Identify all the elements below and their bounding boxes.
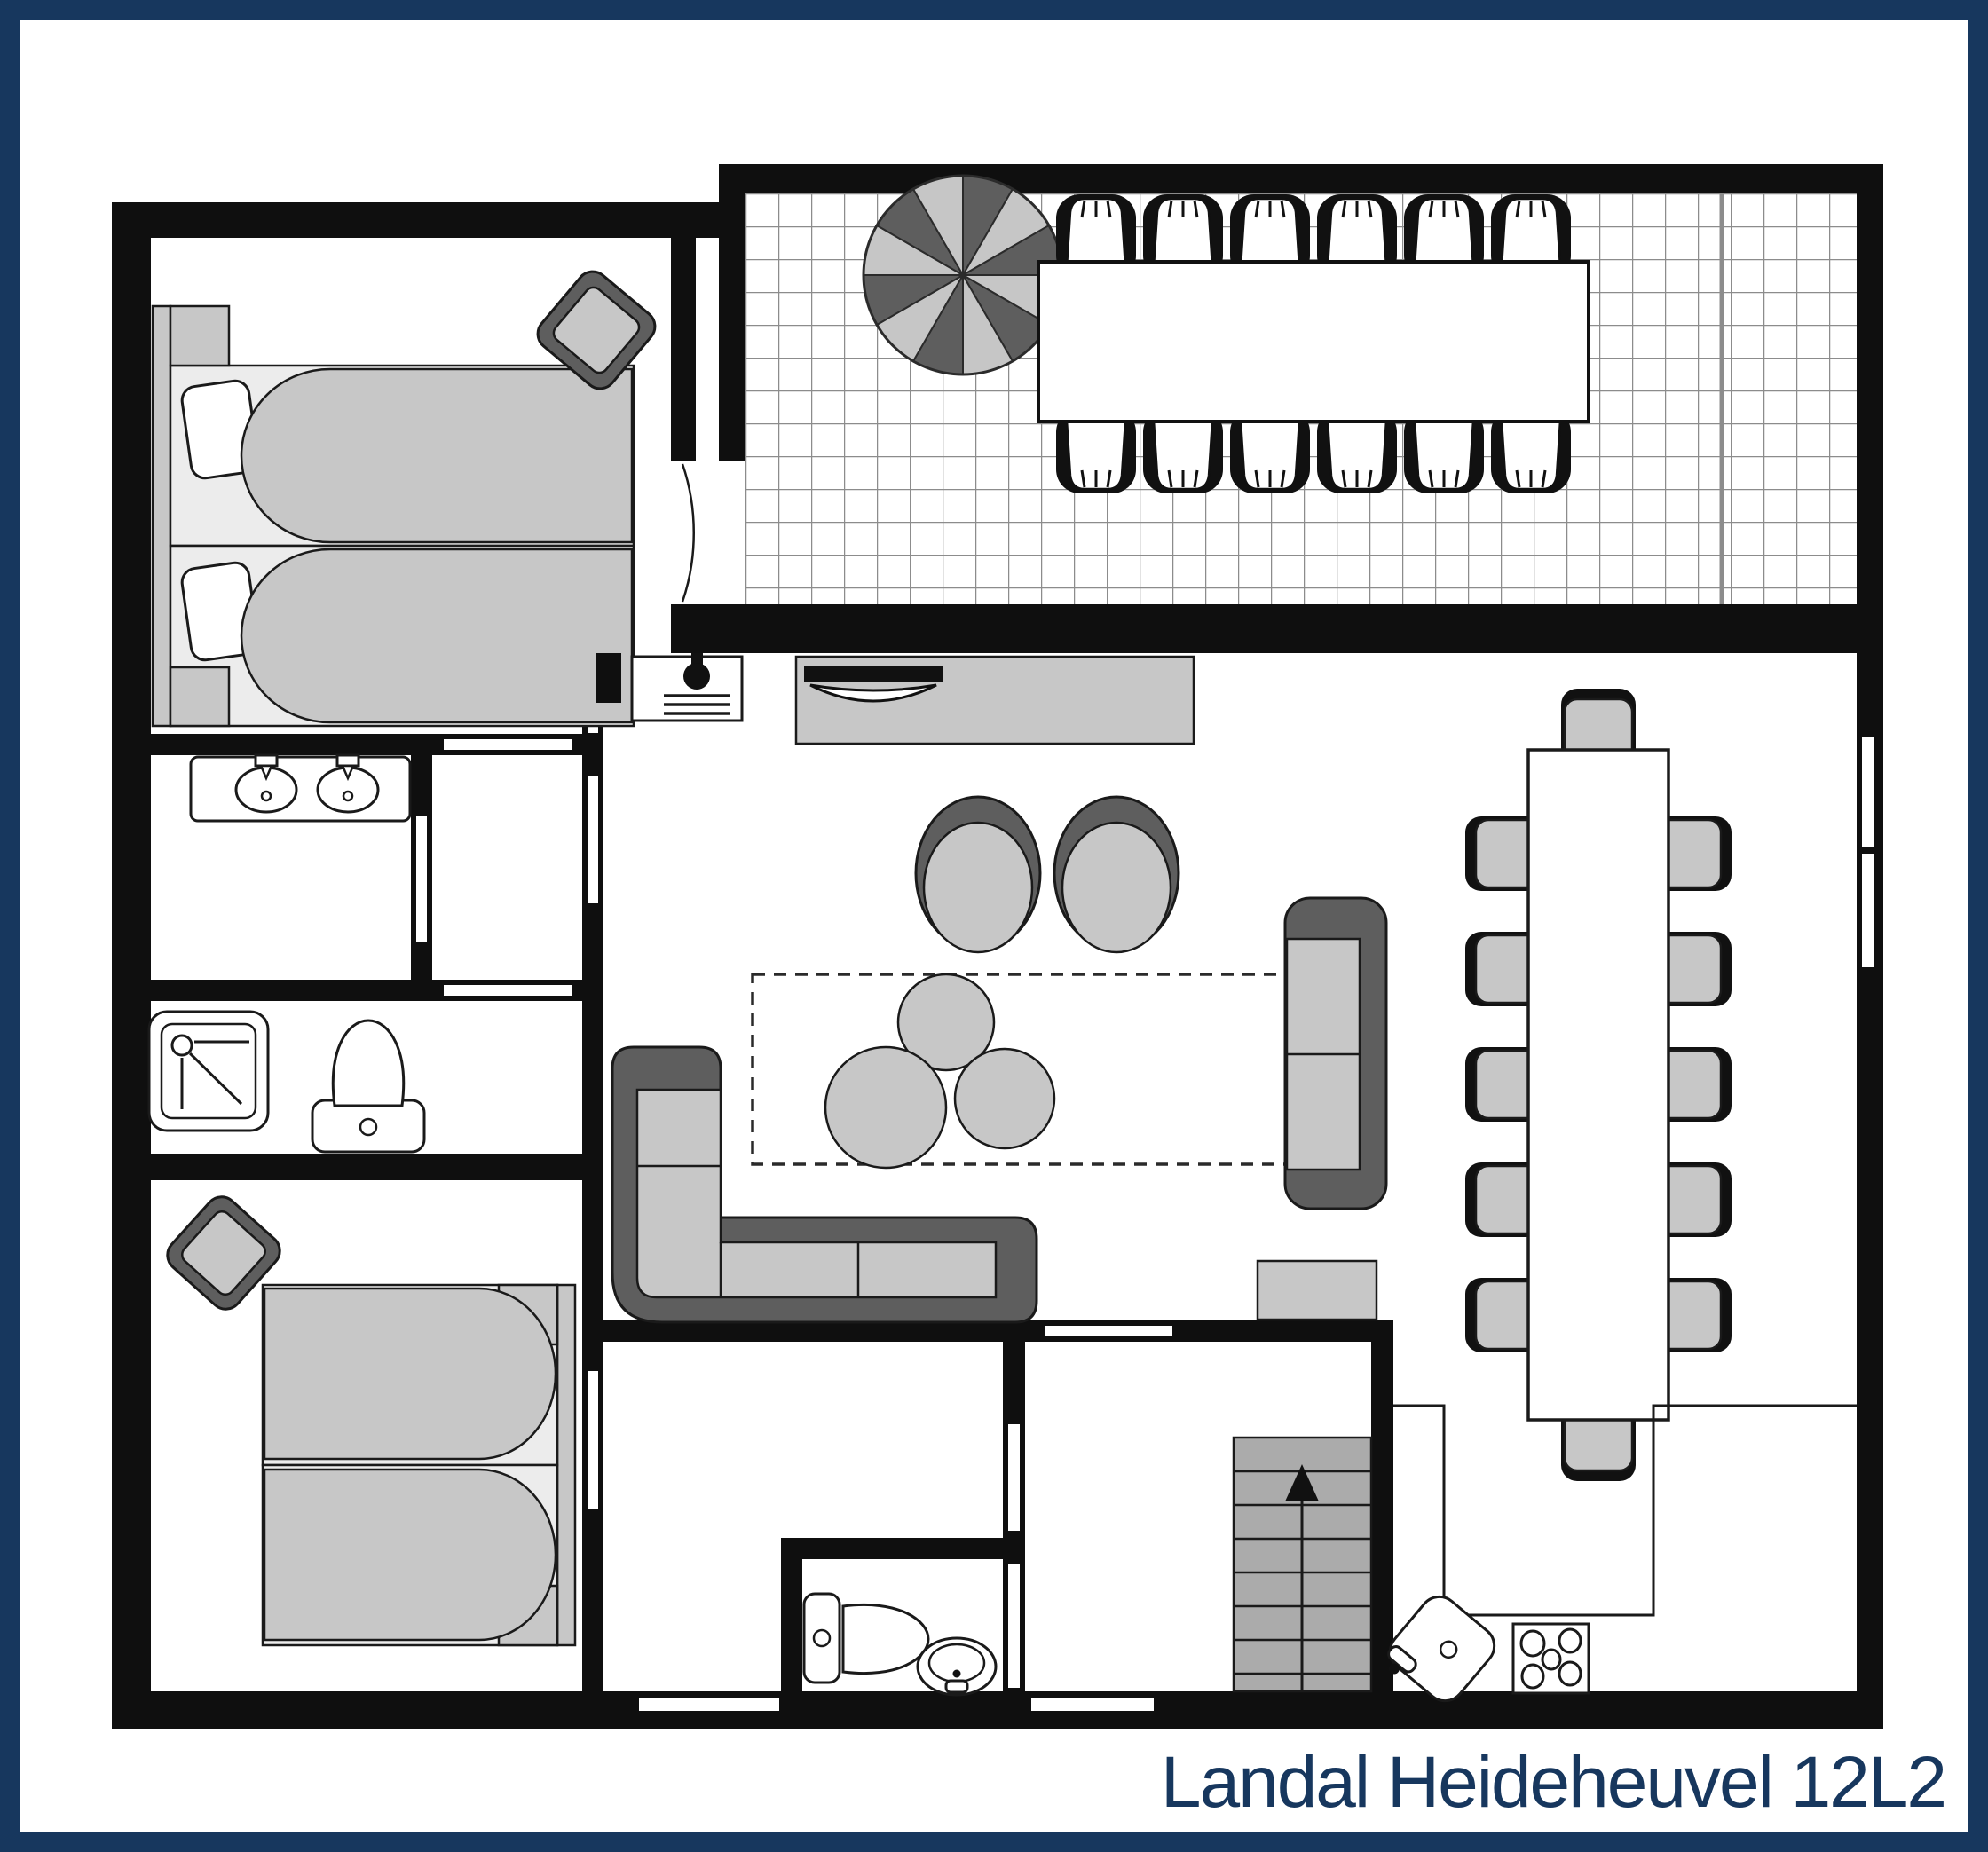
bathroom (149, 755, 424, 1152)
dining-area (1465, 689, 1732, 1481)
floor-plan-drawing (0, 0, 1988, 1852)
wall-toilet-top (781, 1538, 1003, 1559)
bed2-headboard (557, 1285, 575, 1645)
wall-living-bottom (582, 1320, 1393, 1342)
armchair-2 (1054, 797, 1179, 952)
plan-title: Landal Heideheuvel 12L2 (1161, 1741, 1945, 1824)
parasol-icon (864, 176, 1062, 374)
terrace-dining-table (1038, 262, 1589, 422)
wall-top-bedroom (112, 202, 722, 238)
bed1-nightstand-bottom (170, 667, 229, 726)
tv-icon (804, 666, 943, 682)
shower (149, 1012, 268, 1131)
door-bedroom1 (671, 461, 745, 604)
wall-stairhall-right (1371, 1320, 1393, 1691)
window-right-2 (1862, 854, 1874, 967)
wall-bedroom1-right (671, 238, 696, 461)
sideboard (1258, 1261, 1377, 1320)
bed2-duvet-1 (264, 1289, 556, 1459)
window-right-1 (1862, 737, 1874, 847)
door-toilet (1008, 1564, 1020, 1688)
door-bedroom2 (588, 1371, 598, 1509)
sofa-right (1285, 898, 1386, 1209)
bed1-headboard (153, 306, 170, 726)
door-stair-hall (1045, 1326, 1172, 1336)
bedroom-1 (153, 265, 661, 726)
door-storage (1008, 1424, 1020, 1531)
tv-cabinet (796, 657, 1194, 744)
wall-bottom (112, 1691, 1883, 1729)
window-bottom-2 (1031, 1698, 1154, 1711)
living-room (596, 653, 1386, 1322)
wall-bedroom2-top (112, 1154, 603, 1180)
door-bedroom1-hall (444, 739, 572, 750)
bed1-nightstand-top (170, 306, 229, 366)
wall-toilet-left (781, 1538, 802, 1729)
hand-basin (918, 1638, 996, 1695)
dining-table (1528, 750, 1668, 1420)
door-bathroom (416, 816, 427, 942)
terrace-wall-top (719, 164, 1883, 193)
floor-plan-page: Landal Heideheuvel 12L2 (0, 0, 1988, 1852)
bed1-duvet-2 (241, 549, 632, 722)
toilet-room (804, 1594, 996, 1695)
toilet-2 (804, 1594, 928, 1683)
door-shower-room (444, 985, 572, 996)
armchair-1 (916, 797, 1040, 952)
stairs (1234, 1438, 1371, 1691)
toilet-1 (312, 1021, 424, 1152)
shower-head-icon (172, 1036, 192, 1055)
stove (1513, 1624, 1589, 1693)
coffee-tables (825, 974, 1054, 1168)
terrace (719, 164, 1883, 604)
bed2-duvet-2 (264, 1470, 556, 1640)
bedroom-2 (161, 1190, 575, 1645)
bed1-duvet-1 (241, 369, 632, 542)
wall-left (112, 202, 151, 1729)
wall-top-living (671, 604, 1883, 653)
window-bottom-1 (639, 1698, 779, 1711)
door-living (588, 776, 598, 903)
